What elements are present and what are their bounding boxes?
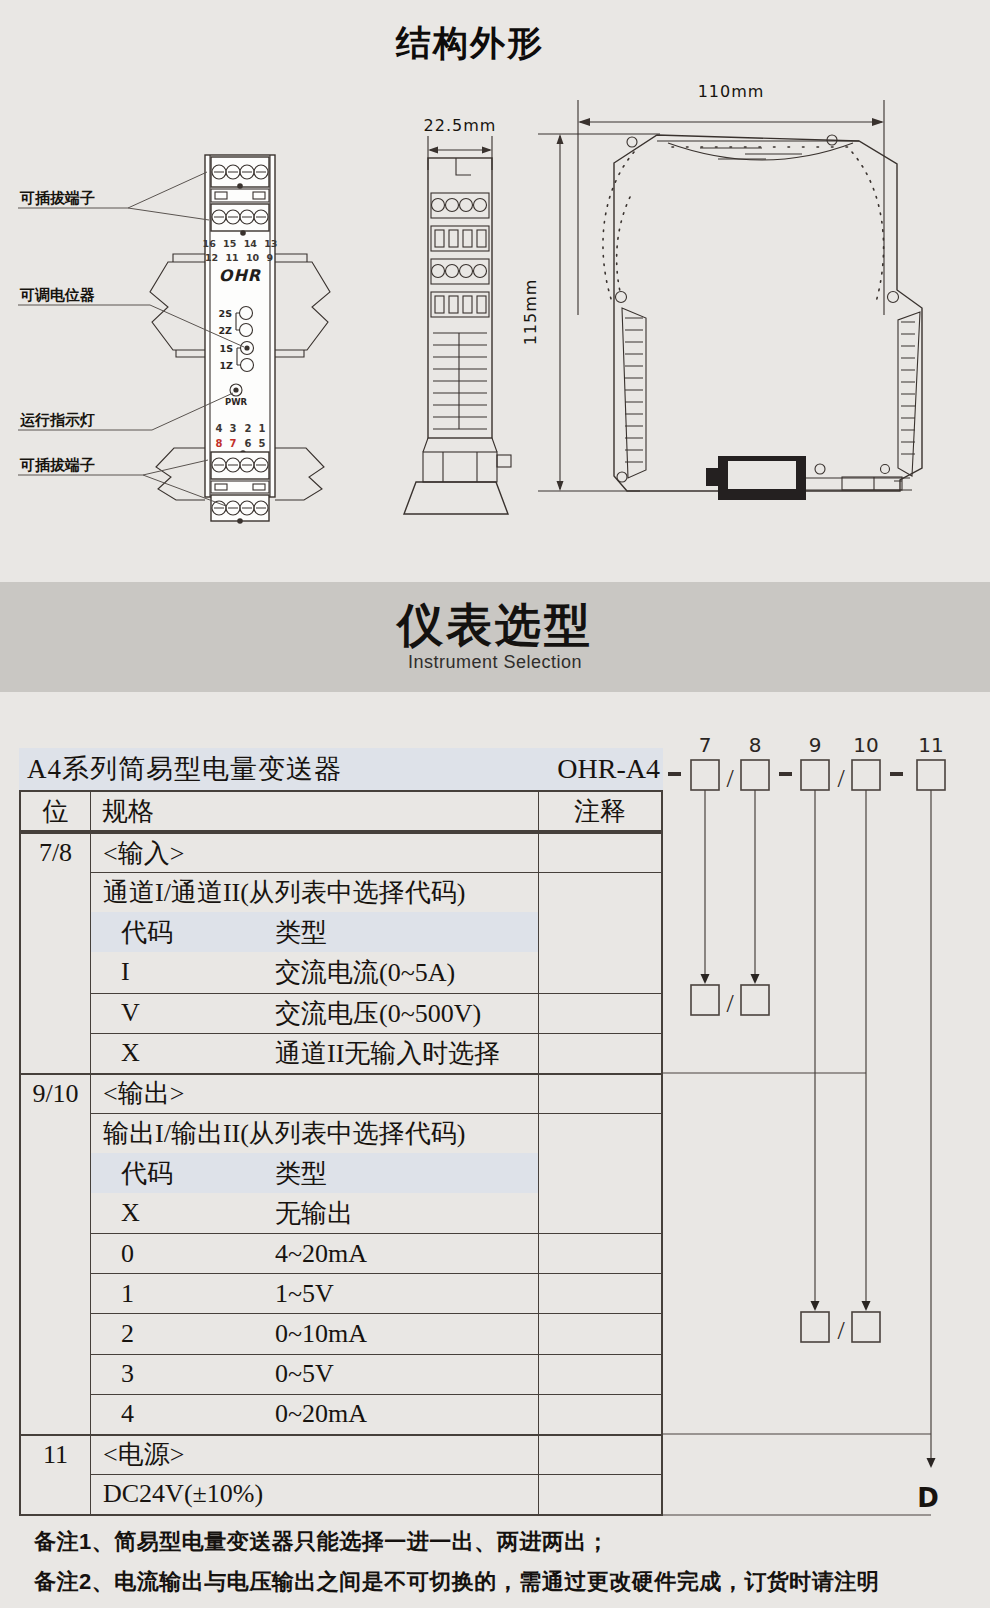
note-cell xyxy=(539,912,661,952)
type-2: 0~10mA xyxy=(275,1319,367,1349)
table-row: 04~20mA xyxy=(21,1233,661,1273)
code-0: 0 xyxy=(103,1239,275,1269)
note-cell xyxy=(539,952,661,992)
digit-11: 11 xyxy=(918,733,943,757)
table-row: 通道I/通道II(从列表中选择代码) xyxy=(21,872,661,912)
type-header-2: 类型 xyxy=(275,1156,327,1191)
slash-output-target: / xyxy=(837,1316,845,1345)
note-cell xyxy=(539,1153,661,1193)
dim-110mm: 110mm xyxy=(698,82,765,101)
band-title: 仪表选型 xyxy=(397,601,593,649)
brand-logo: OHR xyxy=(219,266,262,285)
code-V: V xyxy=(103,998,275,1028)
spec-output-title: <输出> xyxy=(103,1076,184,1111)
table-row: X通道II无输入时选择 xyxy=(21,1033,661,1073)
slash-9-10: / xyxy=(837,764,845,793)
table-row: 11 <电源> xyxy=(21,1434,661,1474)
catalog-page: 结构外形 xyxy=(0,0,990,1608)
dim-110mm-group: 110mm xyxy=(578,82,884,315)
note-cell xyxy=(539,1354,661,1394)
type-1: 1~5V xyxy=(275,1279,334,1309)
spec-power-value: DC24V(±10%) xyxy=(103,1479,263,1509)
table-row: 30~5V xyxy=(21,1354,661,1394)
dim-115mm: 115mm xyxy=(521,279,540,346)
input-code-target xyxy=(691,985,769,1015)
table-row: X无输出 xyxy=(21,1193,661,1233)
type-0: 4~20mA xyxy=(275,1239,367,1269)
spec-power-title: <电源> xyxy=(103,1437,184,1472)
note-cell xyxy=(539,1233,661,1273)
type-V: 交流电压(0~500V) xyxy=(275,996,481,1031)
section-band: 仪表选型 Instrument Selection xyxy=(0,582,990,692)
type-X-out: 无输出 xyxy=(275,1196,353,1231)
note-cell xyxy=(539,1033,661,1073)
header-note: 注释 xyxy=(539,792,661,830)
table-header-row: 位 规格 注释 xyxy=(21,792,661,832)
note-cell xyxy=(539,1474,661,1514)
pos-7-8: 7/8 xyxy=(21,834,91,872)
selection-table: 位 规格 注释 7/8 <输入> 通道I/通道II(从列表中选择代码) 代码类型… xyxy=(19,790,663,1516)
num-1: 1 xyxy=(259,423,266,434)
note-cell xyxy=(539,1273,661,1313)
code-header: 代码 xyxy=(103,915,275,950)
code-X-in: X xyxy=(103,1038,275,1068)
pot-label-2s: 2S xyxy=(219,308,233,319)
band-subtitle: Instrument Selection xyxy=(408,652,582,673)
pot-label-1z: 1Z xyxy=(220,360,234,371)
num-4: 4 xyxy=(216,423,223,434)
power-code-label: D xyxy=(917,1483,939,1513)
footnote-1: 备注1、简易型电量变送器只能选择一进一出、两进两出； xyxy=(34,1527,964,1557)
spec-channel-desc: 通道I/通道II(从列表中选择代码) xyxy=(103,875,466,910)
pot-label-2z: 2Z xyxy=(219,325,233,336)
pot-label-1s: 1S xyxy=(220,343,234,354)
num-5: 5 xyxy=(259,438,266,449)
code-boxes xyxy=(691,760,945,790)
terminal-numbers-top-1: 16 15 14 13 xyxy=(203,238,278,249)
bottom-terminal-block xyxy=(211,450,269,524)
note-cell xyxy=(539,1394,661,1434)
divider-extensions xyxy=(663,1073,931,1515)
table-row: 40~20mA xyxy=(21,1394,661,1434)
header-pos: 位 xyxy=(21,792,91,830)
label-plug-top: 可插拔端子 xyxy=(19,189,95,206)
table-row: 输出I/输出II(从列表中选择代码) xyxy=(21,1113,661,1153)
num-2: 2 xyxy=(245,423,252,434)
note-cell xyxy=(539,993,661,1033)
pos-9-10: 9/10 xyxy=(21,1075,91,1113)
num-7: 7 xyxy=(230,438,237,449)
pos-11: 11 xyxy=(21,1436,91,1474)
front-view-drawing: 16 15 14 13 12 11 10 9 OHR 2S 2Z 1S 1Z xyxy=(203,155,278,524)
type-X-in: 通道II无输入时选择 xyxy=(275,1036,500,1071)
table-row: 代码类型 xyxy=(21,1153,661,1193)
table-row: I交流电流(0~5A) xyxy=(21,952,661,992)
digit-10: 10 xyxy=(853,733,878,757)
table-row: DC24V(±10%) xyxy=(21,1474,661,1514)
output-code-target xyxy=(801,1312,880,1342)
structure-drawing: 16 15 14 13 12 11 10 9 OHR 2S 2Z 1S 1Z xyxy=(0,0,990,560)
note-cell xyxy=(539,834,661,872)
type-I: 交流电流(0~5A) xyxy=(275,955,455,990)
side-profile-drawing xyxy=(603,135,922,500)
dim-22-5mm: 22.5mm xyxy=(424,116,497,135)
note-cell xyxy=(539,1313,661,1353)
type-header: 类型 xyxy=(275,915,327,950)
spec-output-desc: 输出I/输出II(从列表中选择代码) xyxy=(103,1116,466,1151)
header-spec: 规格 xyxy=(91,792,539,830)
code-1: 1 xyxy=(103,1279,275,1309)
terminal-numbers-top-2: 12 11 10 9 xyxy=(205,252,273,263)
pointer-lines xyxy=(701,790,936,1468)
code-3: 3 xyxy=(103,1359,275,1389)
type-4: 0~20mA xyxy=(275,1399,367,1429)
spec-input-title: <输入> xyxy=(103,836,184,871)
type-3: 0~5V xyxy=(275,1359,334,1389)
note-cell xyxy=(539,1436,661,1474)
top-terminal-block xyxy=(211,157,269,236)
table-row: 20~10mA xyxy=(21,1313,661,1353)
series-header-row: A4系列简易型电量变送器 OHR-A4 xyxy=(19,748,663,790)
table-row: V交流电压(0~500V) xyxy=(21,993,661,1033)
table-row: 7/8 <输入> xyxy=(21,832,661,872)
code-X-out: X xyxy=(103,1198,275,1228)
table-row: 代码类型 xyxy=(21,912,661,952)
footnote-2: 备注2、电流输出与电压输出之间是不可切换的，需通过更改硬件完成，订货时请注明 xyxy=(34,1567,964,1597)
side-view-drawing: 22.5mm xyxy=(404,116,511,514)
num-6: 6 xyxy=(245,438,252,449)
code-header-2: 代码 xyxy=(103,1156,275,1191)
digit-8: 8 xyxy=(749,733,762,757)
label-run-led: 运行指示灯 xyxy=(20,411,95,428)
note-cell xyxy=(539,1075,661,1113)
table-row: 11~5V xyxy=(21,1273,661,1313)
note-cell xyxy=(539,872,661,912)
slash-7-8: / xyxy=(726,764,734,793)
table-row: 9/10 <输出> xyxy=(21,1073,661,1113)
num-8: 8 xyxy=(216,438,223,449)
pwr-label: PWR xyxy=(225,397,248,407)
note-cell xyxy=(539,1193,661,1233)
label-pot: 可调电位器 xyxy=(19,286,95,303)
model-prefix: OHR-A4 xyxy=(557,753,660,785)
label-plug-bottom: 可插拔端子 xyxy=(19,456,95,473)
code-2: 2 xyxy=(103,1319,275,1349)
model-dashes xyxy=(668,772,903,776)
code-4: 4 xyxy=(103,1399,275,1429)
slash-input-target: / xyxy=(726,989,734,1018)
digit-7: 7 xyxy=(699,733,712,757)
code-I: I xyxy=(103,957,275,987)
note-cell xyxy=(539,1113,661,1153)
num-3: 3 xyxy=(230,423,237,434)
digit-9: 9 xyxy=(809,733,822,757)
series-title: A4系列简易型电量变送器 xyxy=(19,751,342,787)
